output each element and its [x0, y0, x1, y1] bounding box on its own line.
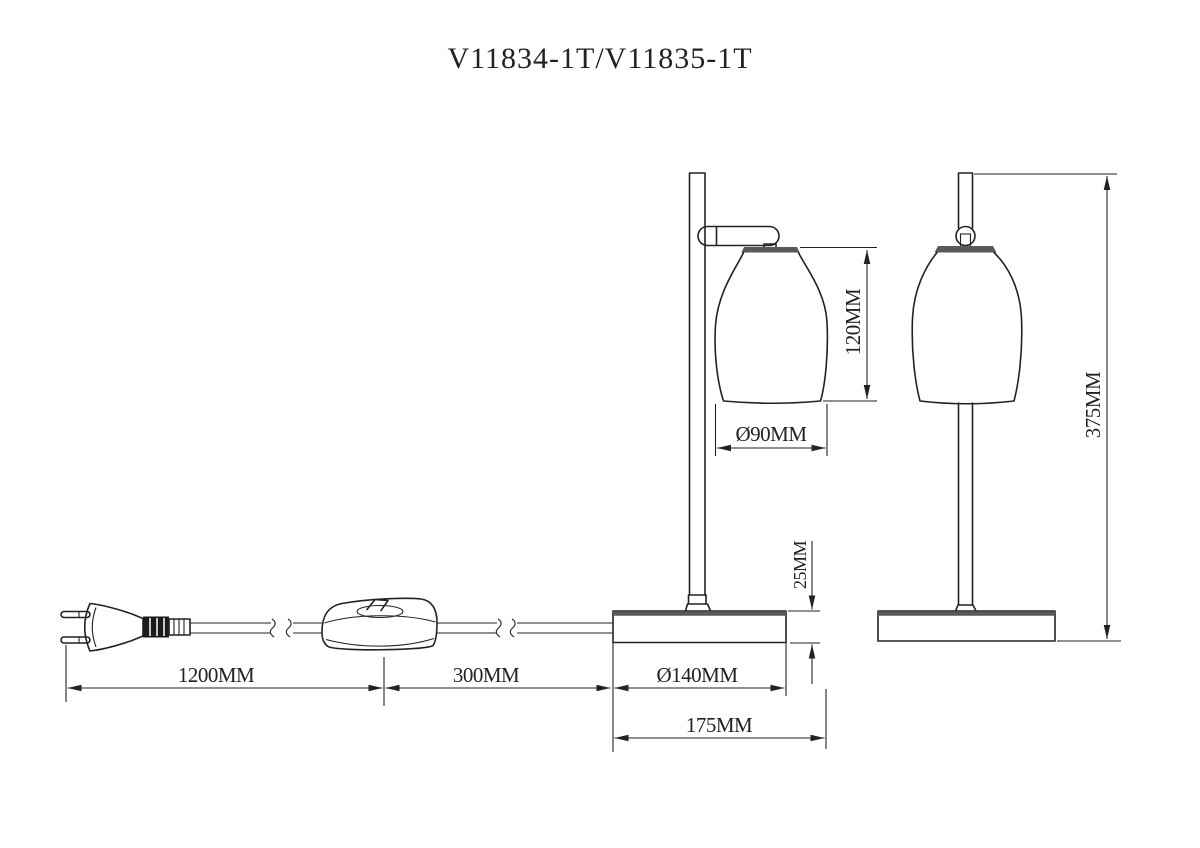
shade-cap-side — [742, 247, 800, 253]
dim-shade-height: 120MM — [800, 248, 877, 402]
switch-top-face-line — [325, 616, 436, 623]
cord-break-curl — [496, 619, 501, 637]
dim-label-base-height: 25MM — [790, 541, 810, 590]
dim-shade-diameter: Ø90MM — [716, 404, 828, 456]
plug-body-inner-arc — [92, 608, 96, 648]
lamp-arm — [698, 227, 779, 246]
cord-segment — [517, 623, 613, 633]
technical-drawing-canvas: V11834-1T/V11835-1T — [0, 0, 1200, 848]
front-view — [878, 173, 1055, 641]
dim-cord-length: 1200MM — [68, 663, 383, 688]
dim-total-height: 375MM — [974, 174, 1121, 641]
cord-segment — [293, 623, 322, 633]
dim-base-diameter: Ø140MM — [615, 663, 785, 688]
dim-label-shade-diameter: Ø90MM — [735, 422, 807, 446]
cord-segment — [190, 623, 271, 633]
cord-segment — [437, 623, 497, 633]
dim-label-base-overall: 175MM — [686, 713, 753, 737]
dim-switch-to-base: 300MM — [386, 663, 611, 688]
plug-body — [85, 604, 143, 652]
cord-break-curl — [510, 619, 515, 637]
shade-body-front — [912, 253, 1022, 404]
dim-label-total-height: 375MM — [1081, 371, 1105, 438]
cord-break-curl — [286, 619, 291, 637]
dim-base-height: 25MM — [788, 541, 820, 684]
switch-bottom-rim-line — [326, 639, 434, 647]
plug-strain-relief-dark — [143, 617, 169, 638]
drawing-title: V11834-1T/V11835-1T — [447, 42, 752, 75]
dim-label-base-diameter: Ø140MM — [656, 663, 738, 687]
lamp-pole-front-lower — [959, 403, 973, 605]
pole-flange — [686, 595, 711, 611]
pole-flange-front — [956, 605, 977, 611]
dim-label-switch-to-base: 300MM — [453, 663, 520, 687]
lamp-pole-front-upper — [959, 173, 973, 228]
cord-break-curl — [270, 619, 275, 637]
side-view-base — [613, 611, 786, 643]
dim-label-shade-height: 120MM — [841, 288, 865, 355]
shade-body-side — [715, 253, 827, 404]
drawing-sheet: V11834-1T/V11835-1T — [0, 0, 1200, 848]
power-cord-assembly — [61, 598, 613, 651]
shade-cap-front — [935, 246, 997, 253]
dim-label-cord-length: 1200MM — [178, 663, 255, 687]
dim-bottom-group: 1200MM 300MM Ø140MM 175MM — [66, 643, 826, 753]
shade-ring — [956, 227, 975, 246]
inline-switch — [322, 598, 437, 649]
dim-base-overall: 175MM — [615, 713, 825, 738]
